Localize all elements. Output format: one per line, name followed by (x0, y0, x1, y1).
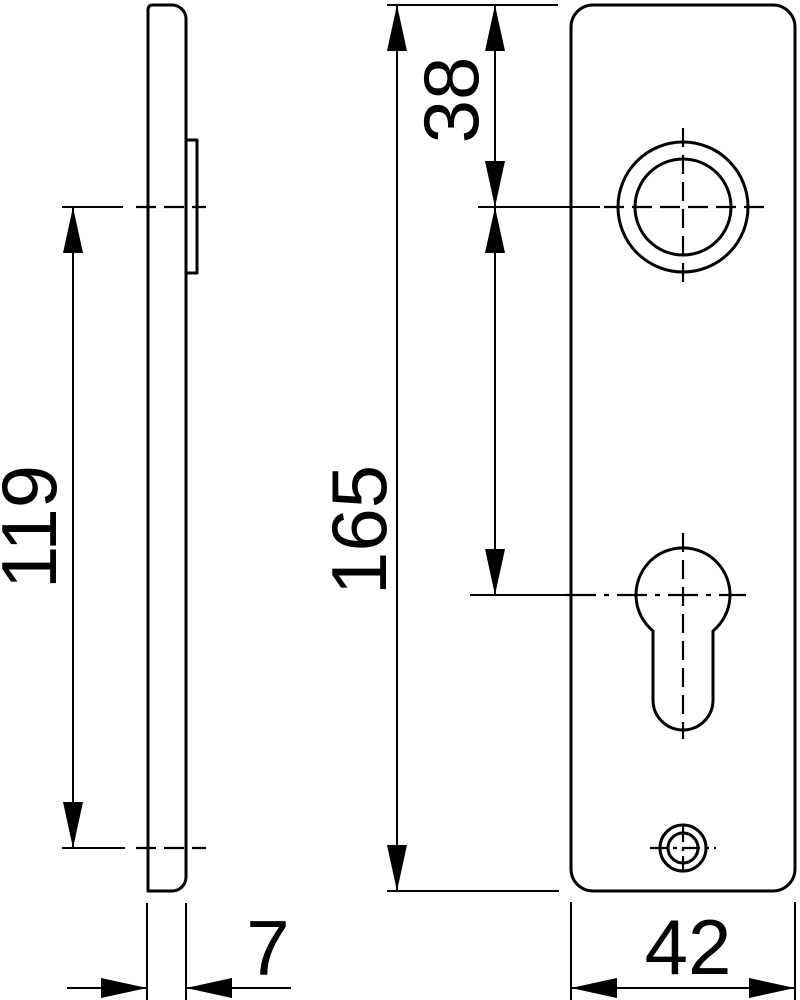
arrowhead-38-bottom (485, 161, 505, 207)
technical-drawing-page: 119 7 165 38 (0, 0, 800, 1000)
arrowhead-42-right (749, 978, 795, 998)
arrowhead-7-left (101, 978, 147, 998)
arrowhead-42-left (571, 978, 617, 998)
arrowhead-handle-to-cylinder-top (485, 207, 505, 253)
dimension-centers-distance: 119 (0, 207, 125, 848)
arrowhead-7-right (186, 978, 232, 998)
dimension-label-42: 42 (645, 903, 732, 991)
dimension-plate-width: 42 (571, 902, 795, 1000)
drawing-canvas: 119 7 165 38 (0, 0, 800, 1000)
front-view (566, 5, 795, 891)
arrowhead-165-bottom (387, 845, 407, 891)
arrowhead-119-bottom (63, 802, 83, 848)
arrowhead-38-top (485, 5, 505, 51)
side-plate-outline (148, 5, 186, 891)
arrowhead-handle-to-cylinder-bottom (485, 549, 505, 595)
dimension-plate-thickness: 7 (67, 903, 291, 1000)
arrowhead-119-top (63, 207, 83, 253)
dimension-label-119: 119 (0, 465, 73, 589)
dimension-handle-to-cylinder (470, 207, 566, 595)
dimension-label-7: 7 (246, 904, 289, 992)
arrowhead-165-top (387, 5, 407, 51)
dimension-label-38: 38 (407, 57, 495, 144)
dimension-label-165: 165 (315, 465, 403, 595)
side-profile-view (136, 5, 206, 891)
